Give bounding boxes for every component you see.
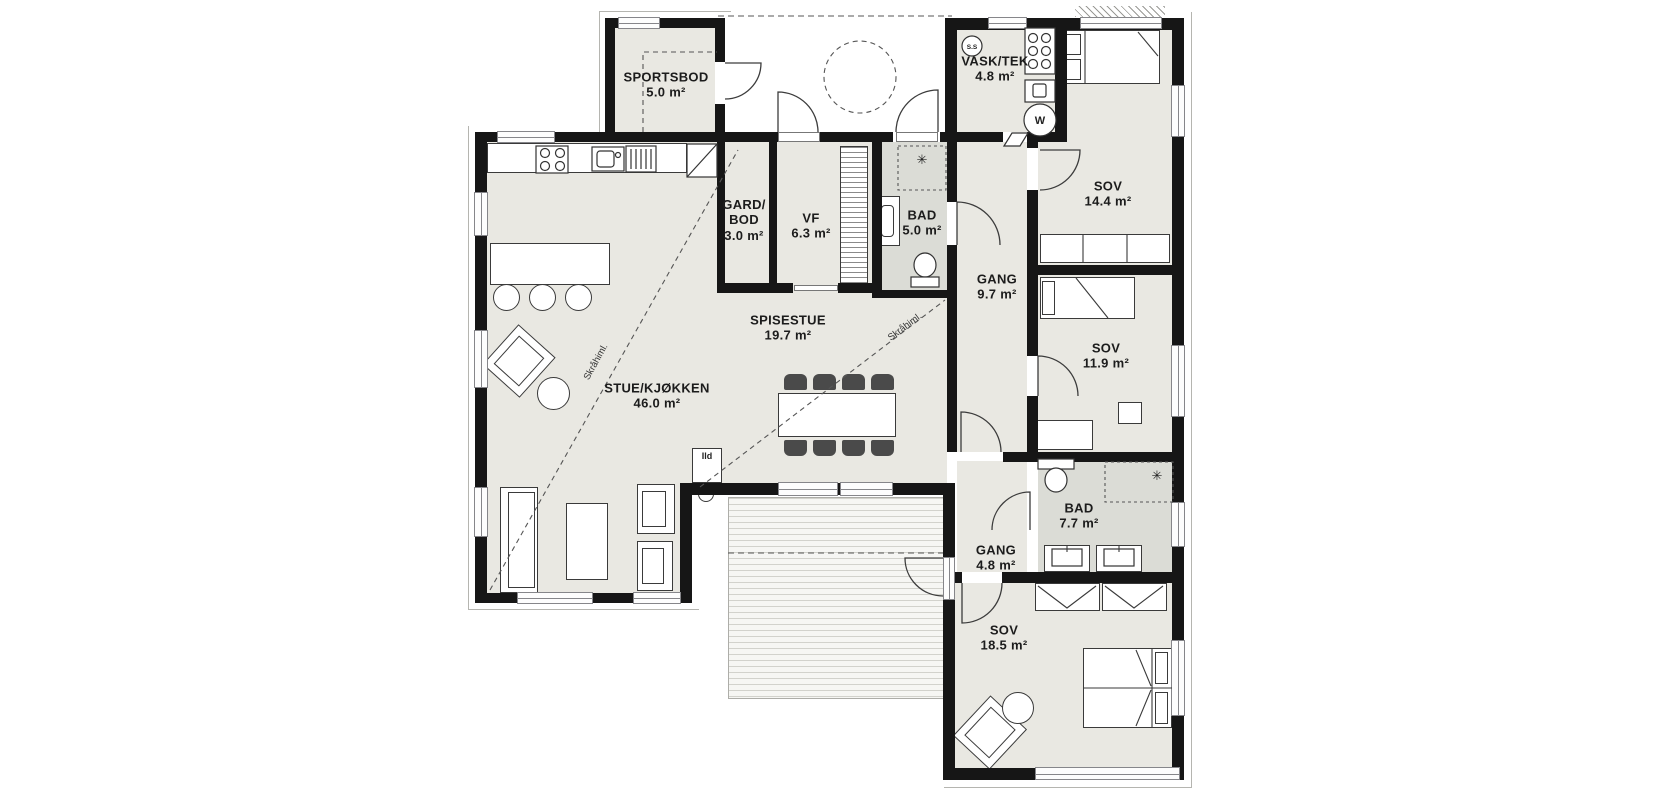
terrace-deck [728,497,945,699]
pillow [1042,281,1055,315]
room-label-gang-1: GANG 9.7 m² [977,272,1017,303]
door-sill [778,132,820,142]
window [1171,640,1185,716]
chair-seat [642,548,664,584]
room-label-sportsbod: SPORTSBOD 5.0 m² [623,70,708,101]
door-sill [896,132,938,142]
bar-stool [493,284,520,311]
room-name: GARD/ [722,197,765,212]
room-name-2: BOD [722,212,765,227]
sliding-partition [794,285,838,291]
dining-chair [842,374,865,390]
wall [1027,265,1184,275]
sofa-seat [508,492,535,588]
room-area: 6.3 m² [791,226,830,241]
side-table [537,377,570,410]
room-name: VF [791,211,830,226]
window [517,592,593,604]
door-entry [778,92,818,132]
wardrobe [1035,583,1100,611]
dresser [1040,234,1170,263]
basin-bowl [881,205,894,237]
wall [955,572,962,583]
door-sportsbod [725,63,761,99]
window [474,487,488,537]
room-name: GANG [977,272,1017,287]
room-area: 14.4 m² [1085,194,1132,209]
fireplace: Ild [692,448,722,483]
room-label-vf: VF 6.3 m² [791,211,830,242]
wall [680,483,692,603]
room-name: SOV [981,623,1028,638]
bar-stool [529,284,556,311]
outline [468,609,699,610]
wall [715,18,725,62]
wall [1002,572,1184,583]
room-name: GANG [976,543,1016,558]
pillow [1066,34,1081,55]
room-label-sov-2: SOV 11.9 m² [1083,341,1129,372]
room-area: 9.7 m² [977,287,1017,302]
dining-chair [784,374,807,390]
wall [945,20,957,132]
room-area: 19.7 m² [750,328,826,343]
outline [944,787,1192,788]
side-table [1002,692,1034,724]
window [988,17,1027,29]
door-porch-gang [896,90,938,132]
pillow [1155,652,1168,684]
room-name: BAD [1059,501,1098,516]
wardrobe-sliding [840,146,868,290]
window [474,192,488,236]
wardrobe [1102,583,1167,611]
outline [599,12,600,133]
floor-plan: Ild [0,0,1670,800]
chair-seat [642,491,666,527]
room-area: 3.0 m² [722,228,765,243]
fireplace-label: Ild [702,451,713,461]
roof-overhang-hatch [1075,6,1165,17]
wall [1027,132,1067,142]
armchair [637,541,673,591]
room-name: SPISESTUE [750,313,826,328]
room-name: VASK/TEK [961,54,1028,69]
window [633,592,681,604]
wall [769,142,777,283]
room-area: 7.7 m² [1059,516,1098,531]
dining-chair [784,440,807,456]
nightstand [1118,402,1142,424]
wall [943,483,955,557]
window [1035,767,1180,780]
window [1171,345,1185,417]
wall [820,132,893,142]
room-label-sov-1: SOV 14.4 m² [1085,179,1132,210]
wall [1027,142,1038,148]
room-label-stue-kjokken: STUE/KJØKKEN 46.0 m² [604,381,709,412]
room-label-bad-2: BAD 7.7 m² [1059,501,1098,532]
wall [940,132,957,142]
window [1171,502,1185,547]
room-name: SPORTSBOD [623,70,708,85]
dining-chair [871,440,894,456]
window [618,17,660,29]
sliding-door [840,482,893,496]
room-label-spisestue: SPISESTUE 19.7 m² [750,313,826,344]
window [1171,85,1185,137]
pillow [1066,59,1081,80]
room-label-bad-1: BAD 5.0 m² [902,208,941,239]
room-name: BAD [902,208,941,223]
wall [1027,452,1184,462]
room-name: SOV [1083,341,1129,356]
coffee-table [566,503,608,580]
room-label-gard-bod: GARD/ BOD 3.0 m² [722,197,765,243]
window [474,330,488,388]
room-area: 4.8 m² [976,558,1016,573]
wall [1055,18,1067,142]
sliding-door [778,482,838,496]
window [1080,17,1162,29]
door-opening [943,557,955,600]
wall [947,245,957,452]
window [497,131,555,143]
wall [947,142,957,202]
room-area: 4.8 m² [961,69,1028,84]
porch-circle [824,41,896,113]
wall [715,104,725,142]
outline [599,11,731,12]
bar-stool [565,284,592,311]
sofa [500,487,538,593]
dining-chair [871,374,894,390]
room-name: SOV [1085,179,1132,194]
wall [872,142,882,298]
pillow [1155,692,1168,724]
wall [872,290,957,298]
dresser [1035,420,1093,450]
room-label-vask-tek: VASK/TEK 4.8 m² [961,54,1028,85]
room-area: 18.5 m² [981,638,1028,653]
armchair [637,484,675,534]
room-area: 5.0 m² [623,85,708,100]
room-name: STUE/KJØKKEN [604,381,709,396]
kitchen-counter [487,143,687,173]
room-label-sov-3: SOV 18.5 m² [981,623,1028,654]
outline [1191,12,1192,787]
wall [943,600,955,780]
room-area: 11.9 m² [1083,356,1129,371]
room-area: 46.0 m² [604,396,709,411]
kitchen-island [490,243,610,285]
room-label-gang-2: GANG 4.8 m² [976,543,1016,574]
wall [957,132,1003,142]
dining-chair [842,440,865,456]
vanity-sink [1044,545,1090,572]
vanity-sink [1096,545,1142,572]
room-area: 5.0 m² [902,223,941,238]
wall [605,18,615,142]
dining-chair [813,374,836,390]
wall [717,283,793,293]
dining-chair [813,440,836,456]
outline [468,126,469,609]
dining-table [778,393,896,437]
